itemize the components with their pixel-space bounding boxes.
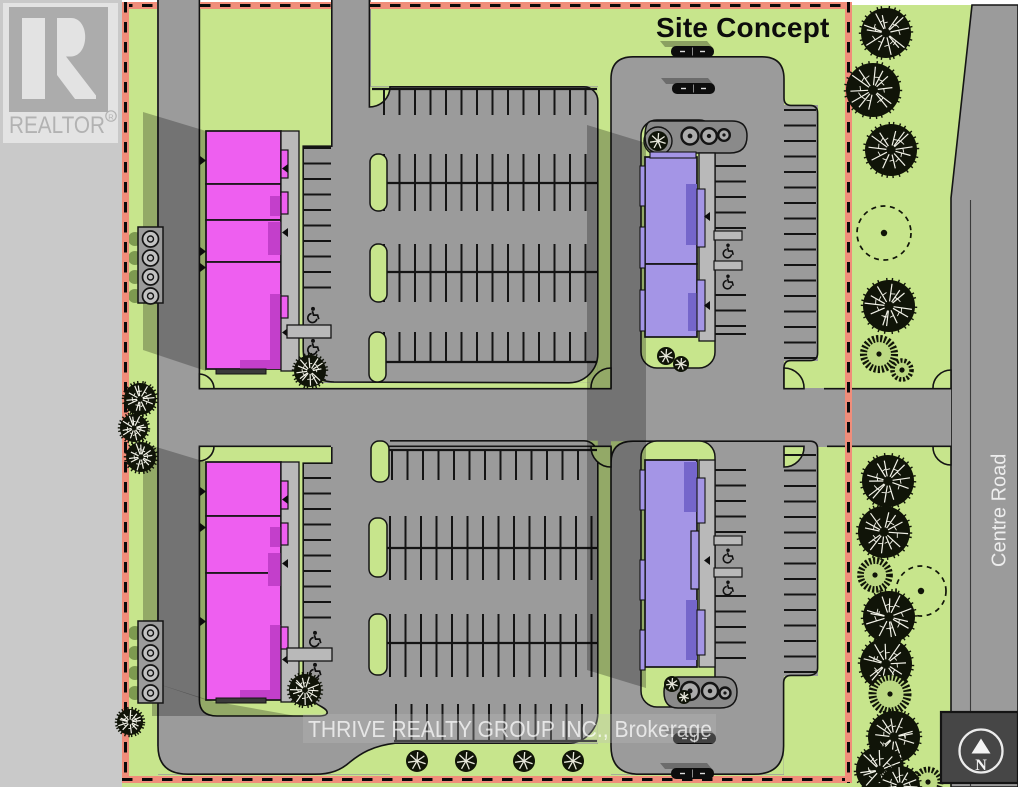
svg-text:Site Concept: Site Concept [656,12,830,43]
svg-text:REALTOR: REALTOR [9,112,105,139]
svg-text:N: N [975,757,987,774]
svg-text:Centre Road: Centre Road [989,454,1011,567]
svg-text:R: R [108,113,114,122]
svg-text:THRIVE REALTY GROUP INC., Brok: THRIVE REALTY GROUP INC., Brokerage [308,716,712,742]
